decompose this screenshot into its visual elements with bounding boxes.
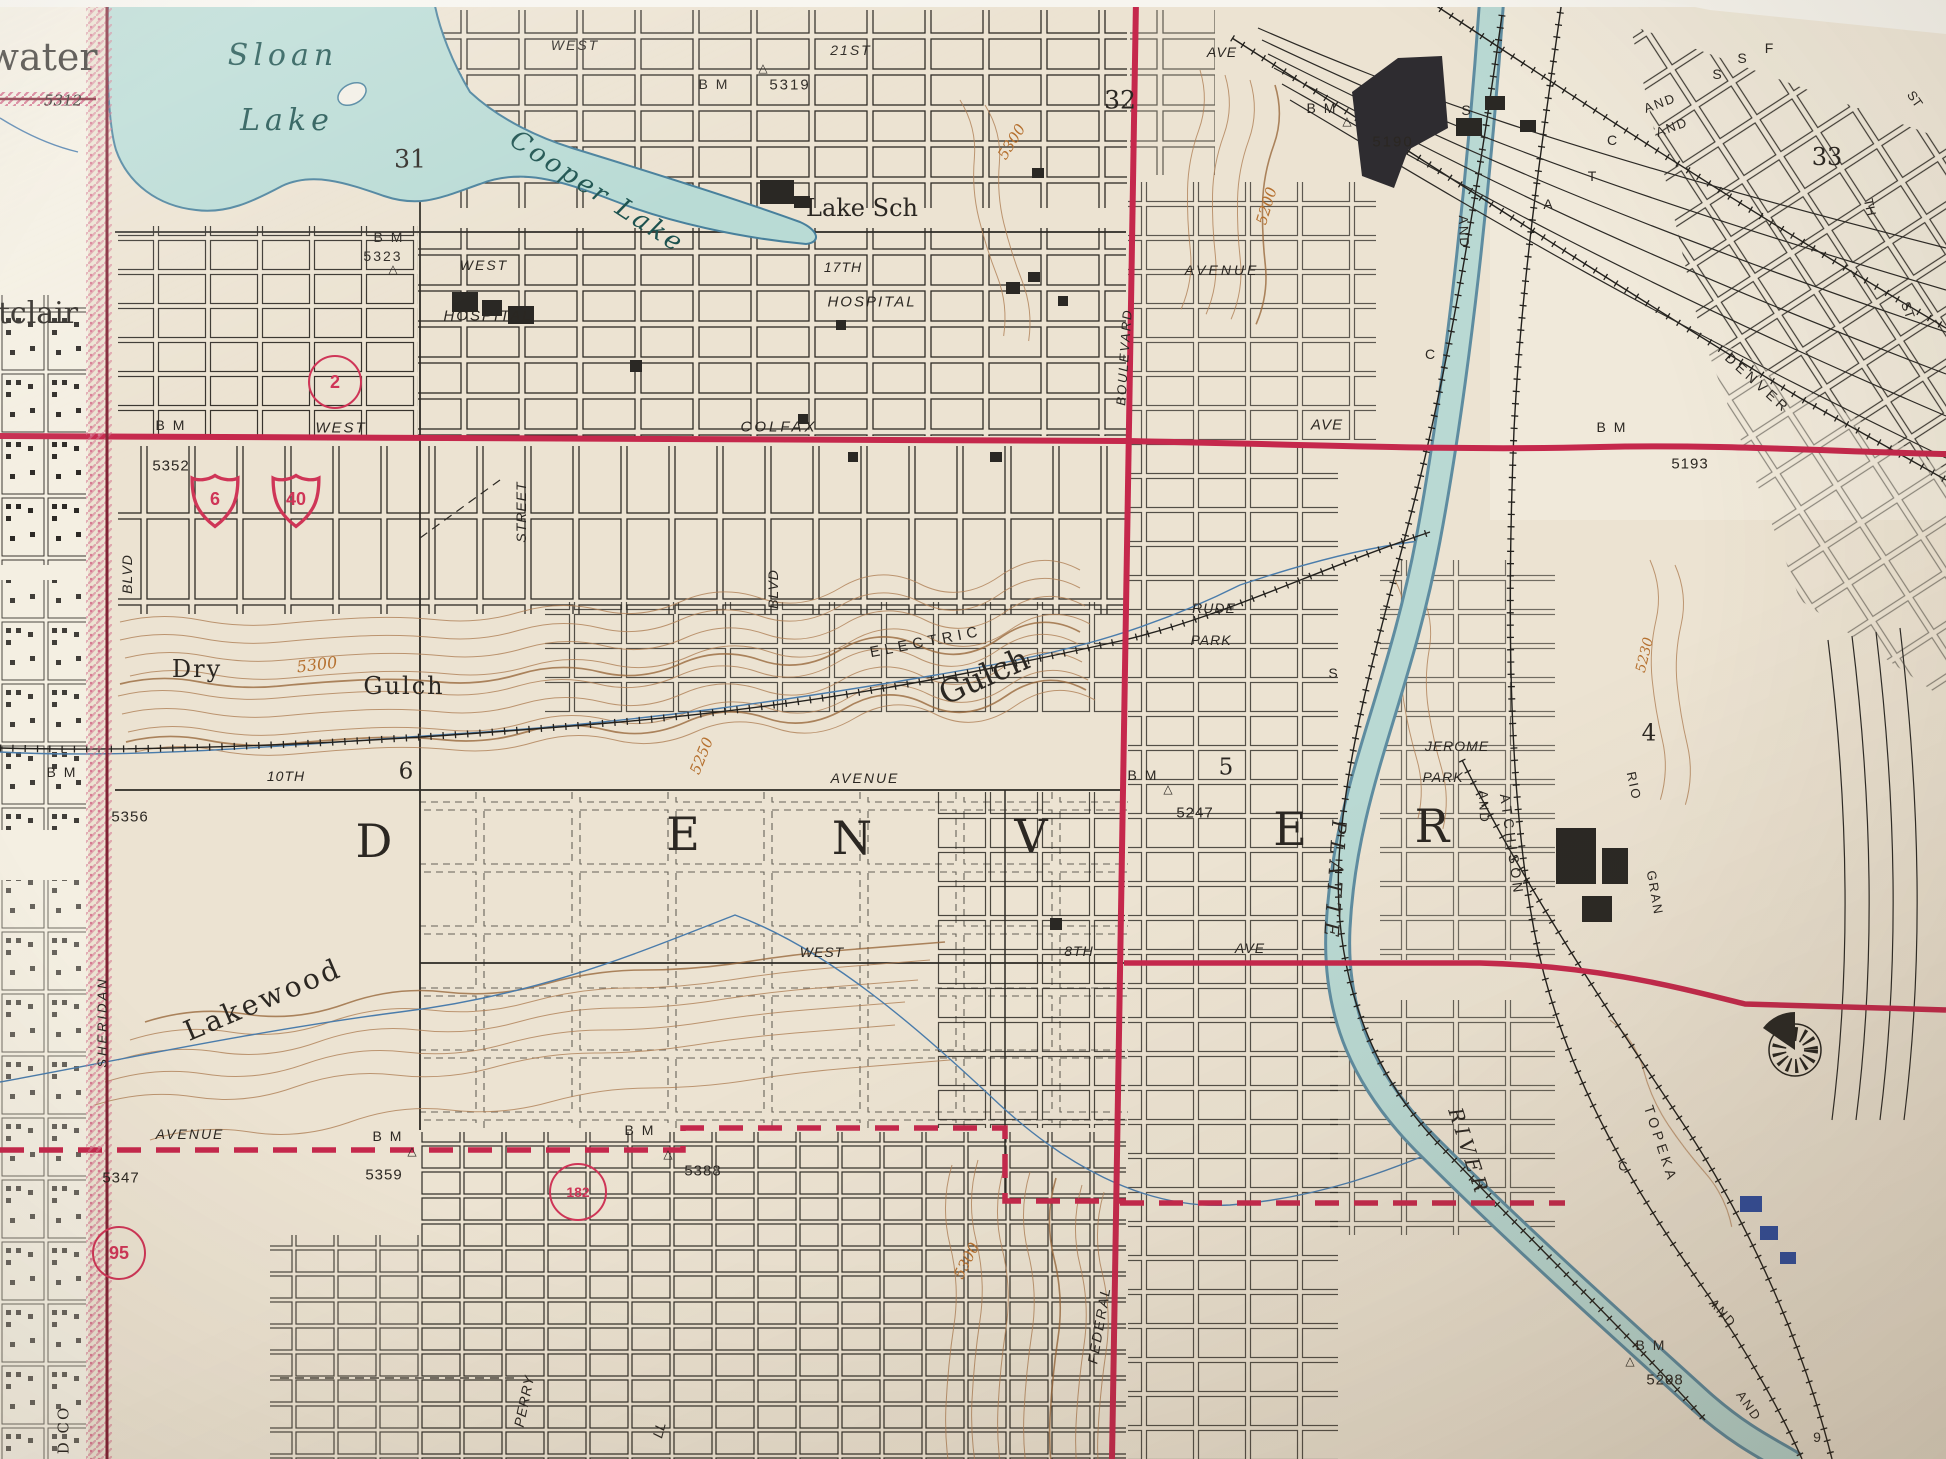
bm-5352-val-label: 5352 <box>152 459 189 474</box>
sloan-lake-line2-label: Lake <box>240 106 334 136</box>
atsf-a-label: A <box>1543 197 1552 211</box>
street-vertical-label: STREET <box>514 481 528 542</box>
contour-5250-label: 5250 <box>688 735 716 776</box>
denver-letter-r-label: R <box>1415 803 1450 849</box>
contour-5300-dry-label: 5300 <box>296 655 338 676</box>
edgewater-partial-label: water <box>0 38 98 76</box>
section-6-label: 6 <box>399 761 414 784</box>
benchmark-triangle-6: △ <box>1625 1354 1634 1368</box>
bm-5388-val-label: 5388 <box>684 1164 721 1179</box>
blvd-sheridan-label: BLVD <box>120 554 134 594</box>
dry-gulch-word2-label: Gulch <box>363 674 444 698</box>
and-diag-2-label: AND <box>1734 1389 1764 1424</box>
bm-5247-val-label: 5247 <box>1176 806 1213 821</box>
labels-layer: water5312SloanLake31CooperLakeWEST21STAV… <box>0 0 1946 1459</box>
hospital-west-label: HOSPITAL <box>443 309 532 324</box>
grande-vertical-label: GRAN <box>1645 869 1666 916</box>
contour-5230-label: 5230 <box>1634 636 1656 674</box>
benchmark-triangle-4: △ <box>407 1144 416 1158</box>
colfax-label: COLFAX <box>741 420 818 435</box>
us-route-40-shield: 40 <box>270 473 322 525</box>
west-8th-label: WEST <box>800 945 844 959</box>
us-route-6-shield-number: 6 <box>210 489 220 510</box>
atchison-vertical-label: ATCHISON <box>1498 793 1526 897</box>
contour-5300-ne-label: 5300 <box>996 122 1029 162</box>
electric-label-label: ELECTRIC <box>869 624 984 661</box>
bm-5356-val-label: 5356 <box>111 810 148 825</box>
bm-5319-val-label: 5319 <box>769 78 810 93</box>
bm-5356-bm-label: B M <box>47 765 78 779</box>
lowell-partial-label: LL <box>650 1421 668 1440</box>
bm-5323-val-label: 5323 <box>363 249 402 263</box>
bm-5359-bm-label: B M <box>373 1129 404 1143</box>
tenth-st-vertical-label: TH <box>1862 197 1878 217</box>
section-4-label: 4 <box>1642 723 1657 746</box>
st-vertical-2-label: ST <box>1905 88 1925 109</box>
west-colfax-label: WEST <box>315 421 366 436</box>
hospital-east-label: HOSPITAL <box>827 295 916 310</box>
west-21st-west-label: WEST <box>551 38 599 52</box>
bm-5347-val-label: 5347 <box>102 1171 139 1186</box>
bm-5352-bm-label: B M <box>156 418 187 432</box>
and-vertical-1-label: AND <box>1477 790 1491 824</box>
topeka-vertical-label: TOPEKA <box>1642 1104 1680 1185</box>
bm-5190-bm-label: B M <box>1307 101 1338 115</box>
ave-8th-label: AVE <box>1235 941 1265 955</box>
section-33-label: 33 <box>1812 145 1843 169</box>
perry-vertical-label: PERRY <box>512 1374 537 1428</box>
us-route-6-shield: 6 <box>189 473 241 525</box>
atsf-t-label: T <box>1588 169 1597 183</box>
contour-5300-sw-label: 5300 <box>952 1241 983 1282</box>
atsf-f-label: F <box>1765 41 1774 55</box>
lake-school-label: Lake Sch <box>806 196 918 220</box>
cooper-lake-word1-label: Cooper <box>505 126 614 210</box>
county-partial-label: D CO <box>57 1406 72 1455</box>
avenue-10th-label: AVENUE <box>831 771 900 785</box>
denver-letter-d-label: D <box>356 818 393 864</box>
blvd-vertical-label: BLVD <box>766 569 780 609</box>
avenue-sw-label: AVENUE <box>156 1127 225 1141</box>
boulevard-federal-label: BOULEVARD <box>1114 308 1134 406</box>
seventeenth-st-label: 17TH <box>824 260 862 274</box>
jerome-park-line2-label: PARK <box>1422 770 1463 784</box>
atsf-s-1-label: S <box>1712 67 1721 81</box>
lakewood-label-label: Lakewood <box>180 954 346 1046</box>
state-route-2-shield: 2 <box>308 355 362 409</box>
c-and-s-s1-label: S <box>1461 103 1470 117</box>
state-route-95-shield-number: 95 <box>109 1243 129 1264</box>
bm-5359-val-label: 5359 <box>365 1168 402 1183</box>
bm-5323-bm-label: B M <box>374 230 405 244</box>
c-and-s-and1-label: AND <box>1457 215 1471 249</box>
benchmark-triangle-2: △ <box>1342 114 1351 128</box>
rude-park-line2-label: PARK <box>1190 633 1231 647</box>
gulch-big-label: Gulch <box>934 642 1034 710</box>
river-label-label: RIVER <box>1445 1105 1492 1199</box>
rude-park-line1-label: RUDE <box>1192 601 1236 615</box>
section-5-label: 5 <box>1219 757 1234 780</box>
sheridan-vertical-label: SHERIDAN <box>96 976 109 1067</box>
tenth-ave-label: 10TH <box>267 769 305 783</box>
bm-5193-val-label: 5193 <box>1671 457 1708 472</box>
benchmark-triangle-0: △ <box>758 61 767 75</box>
section-31-label: 31 <box>394 147 426 172</box>
bm-5388-bm-label: B M <box>625 1123 656 1137</box>
avenue-17th-label: AVENUE <box>1185 263 1260 277</box>
montclair-partial-label: tclair <box>0 299 78 329</box>
bm-5247-bm-label: B M <box>1128 768 1159 782</box>
benchmark-triangle-1: △ <box>388 262 397 276</box>
federal-vertical-label: FEDERAL <box>1085 1285 1112 1365</box>
atsf-c-label: C <box>1607 133 1617 147</box>
bm-5312-val-label: 5312 <box>44 94 82 109</box>
ave-21st-label: AVE <box>1207 45 1237 59</box>
ave-colfax-label: AVE <box>1311 418 1343 433</box>
bm-5319-bm-label: B M <box>699 77 730 91</box>
c-and-s-c2-label: C <box>1618 1160 1627 1173</box>
west-17th-label: WEST <box>460 258 508 272</box>
denver-letter-e2-label: E <box>1273 806 1307 852</box>
rio-vertical-label: RIO <box>1625 770 1644 801</box>
and-diag-1-label: AND <box>1707 1296 1739 1330</box>
benchmark-triangle-5: △ <box>663 1147 672 1161</box>
c-and-s-c1-label: C <box>1425 347 1435 361</box>
atsf-s-2-label: S <box>1737 51 1746 65</box>
state-route-2-shield-number: 2 <box>330 372 340 393</box>
atsf-and-2-label: AND <box>1654 115 1690 139</box>
bm-5190-val-label: 5190 <box>1372 135 1413 150</box>
num-9-label: 9 <box>1813 1430 1821 1444</box>
state-route-182-shield-number: 182 <box>566 1184 589 1200</box>
topo-map-photo: water5312SloanLake31CooperLakeWEST21STAV… <box>0 0 1946 1459</box>
bm-5208-val-label: 5208 <box>1646 1373 1683 1388</box>
state-route-182-shield: 182 <box>549 1163 607 1221</box>
st-vertical-1-label: ST <box>1899 300 1917 320</box>
eighth-ave-label: 8TH <box>1064 944 1093 958</box>
atsf-and-1-label: AND <box>1642 91 1678 115</box>
platte-label-label: PLATTE <box>1321 820 1350 945</box>
section-32-label: 32 <box>1104 88 1136 113</box>
us-route-40-shield-number: 40 <box>286 489 306 510</box>
jerome-park-line1-label: JEROME <box>1425 739 1489 753</box>
cooper-lake-word2-label: Lake <box>611 194 689 257</box>
west-21st-num-label: 21ST <box>830 43 871 57</box>
bm-5208-bm-label: B M <box>1636 1338 1667 1352</box>
denver-letter-e1-label: E <box>666 811 700 857</box>
c-and-s-s2-label: S <box>1328 666 1337 680</box>
denver-letter-v-label: V <box>1014 813 1047 859</box>
benchmark-triangle-3: △ <box>1163 782 1172 796</box>
sloan-lake-line1-label: Sloan <box>228 41 338 71</box>
denver-letter-n-label: N <box>832 815 872 861</box>
denver-rail-diag-label: DENVER <box>1723 350 1794 416</box>
bm-5193-bm-label: B M <box>1597 420 1628 434</box>
dry-gulch-word1-label: Dry <box>172 657 222 681</box>
contour-5200-label: 5200 <box>1254 186 1280 227</box>
state-route-95-shield: 95 <box>92 1226 146 1280</box>
